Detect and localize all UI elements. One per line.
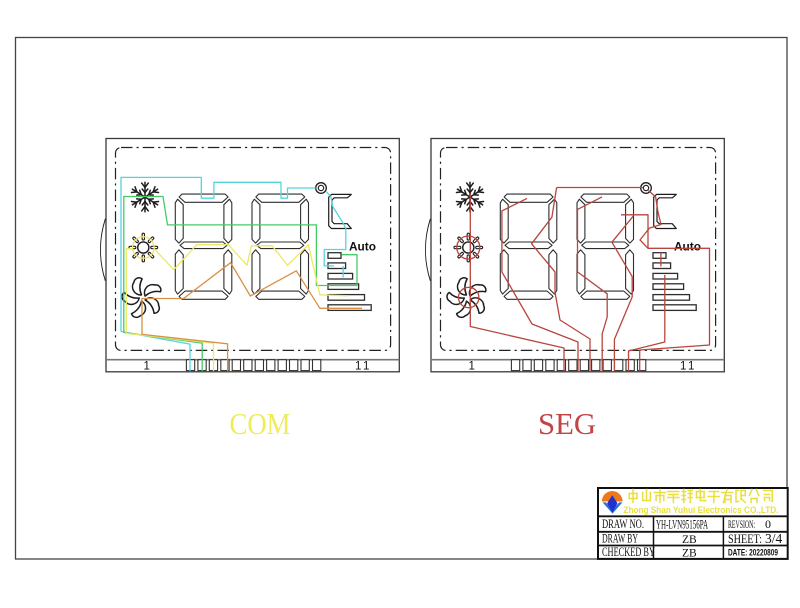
svg-text:1: 1	[144, 361, 150, 373]
svg-text:COM: COM	[230, 406, 291, 441]
svg-text:11: 11	[355, 361, 372, 373]
svg-text:SHEET:: SHEET:	[728, 531, 762, 546]
svg-text:DRAW BY: DRAW BY	[602, 532, 638, 546]
svg-text:Zhong Shan Yuhui Electronics C: Zhong Shan Yuhui Electronics CO.,LTD.	[624, 505, 779, 515]
svg-text:SEG: SEG	[538, 406, 596, 441]
svg-text:1: 1	[469, 361, 475, 373]
svg-text:YH-LVN95156PA: YH-LVN95156PA	[656, 518, 708, 532]
svg-text:Auto: Auto	[349, 239, 376, 253]
svg-text:Auto: Auto	[674, 239, 701, 253]
svg-text:0: 0	[765, 517, 771, 531]
svg-text:REVSION:: REVSION:	[728, 519, 755, 531]
svg-text:ZB: ZB	[682, 548, 697, 560]
svg-text:DRAW NO.: DRAW NO.	[602, 517, 644, 531]
svg-text:3/4: 3/4	[765, 531, 783, 546]
svg-text:ZB: ZB	[682, 534, 697, 546]
svg-text:CHECKED BY: CHECKED BY	[602, 545, 655, 559]
svg-text:DATE: 20220809: DATE: 20220809	[728, 548, 778, 558]
svg-text:11: 11	[680, 361, 697, 373]
